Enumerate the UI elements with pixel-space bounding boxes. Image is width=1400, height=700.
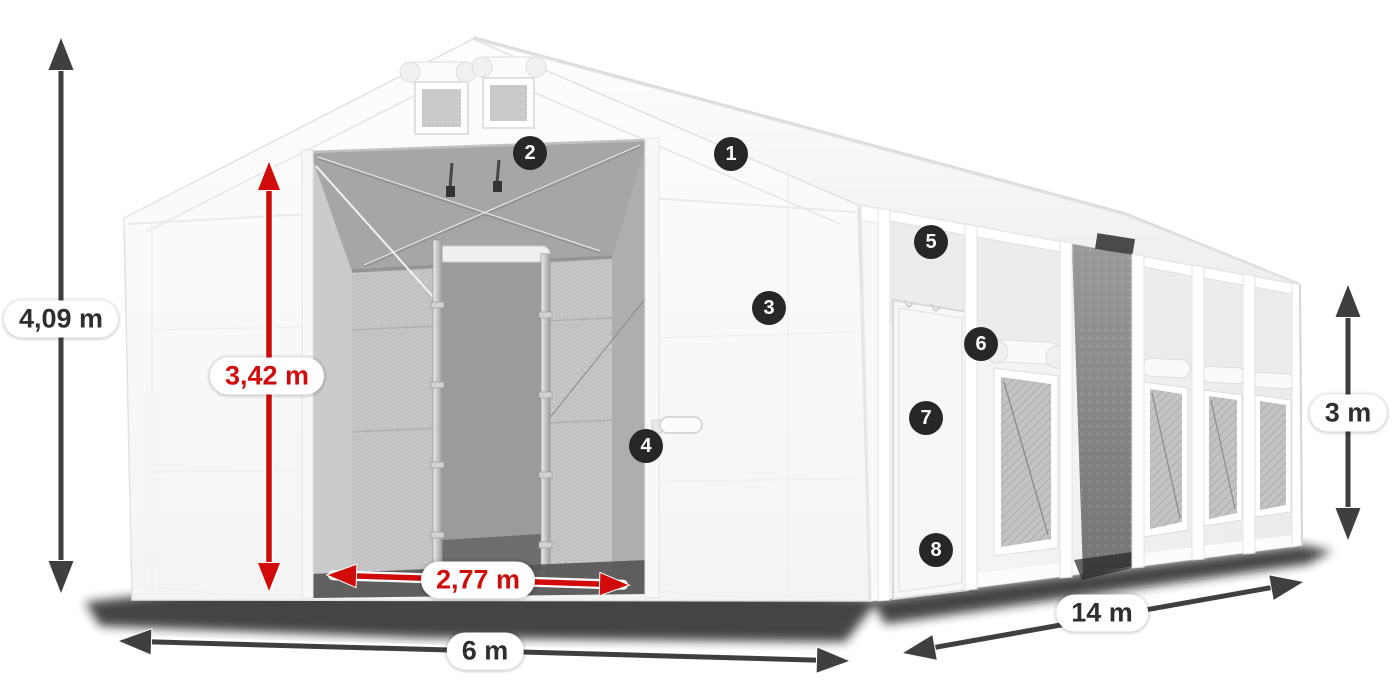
dimension-label-entrance-height: 3,42 m: [210, 358, 324, 395]
dimension-label-entrance-width: 2,77 m: [421, 562, 535, 599]
callout-badge-6[interactable]: 6: [964, 327, 998, 361]
side-upper-panel: [1204, 278, 1243, 377]
frame-pole: [431, 240, 444, 568]
dimension-label-side-height: 3 m: [1310, 395, 1387, 432]
callout-badge-4[interactable]: 4: [629, 429, 663, 463]
side-upper-panel: [1144, 267, 1192, 369]
callout-badge-3[interactable]: 3: [752, 291, 786, 325]
frame-pole: [539, 254, 552, 578]
inner-opening: [442, 256, 541, 570]
side-upper-panel: [1255, 287, 1292, 384]
inner-rolled-door: [434, 246, 550, 262]
dimension-label-total-height: 4,09 m: [4, 301, 118, 338]
callout-badge-8[interactable]: 8: [919, 533, 953, 567]
side-doorway-open: [1072, 233, 1140, 580]
callout-badge-7[interactable]: 7: [909, 401, 943, 435]
entrance-right-frame: [645, 138, 659, 598]
tent-illustration: [0, 0, 1400, 700]
entrance-interior: [302, 138, 659, 598]
callout-badge-5[interactable]: 5: [914, 225, 948, 259]
callout-badge-1[interactable]: 1: [714, 137, 748, 171]
dimension-label-front-width: 6 m: [447, 633, 524, 670]
dimension-label-side-length: 14 m: [1056, 595, 1148, 632]
callout-badge-2[interactable]: 2: [513, 136, 547, 170]
tent-product-diagram: 1 2 3 4 5 6 7 8 4,09 m 3,42 m 2,77 m 6 m…: [0, 0, 1400, 700]
